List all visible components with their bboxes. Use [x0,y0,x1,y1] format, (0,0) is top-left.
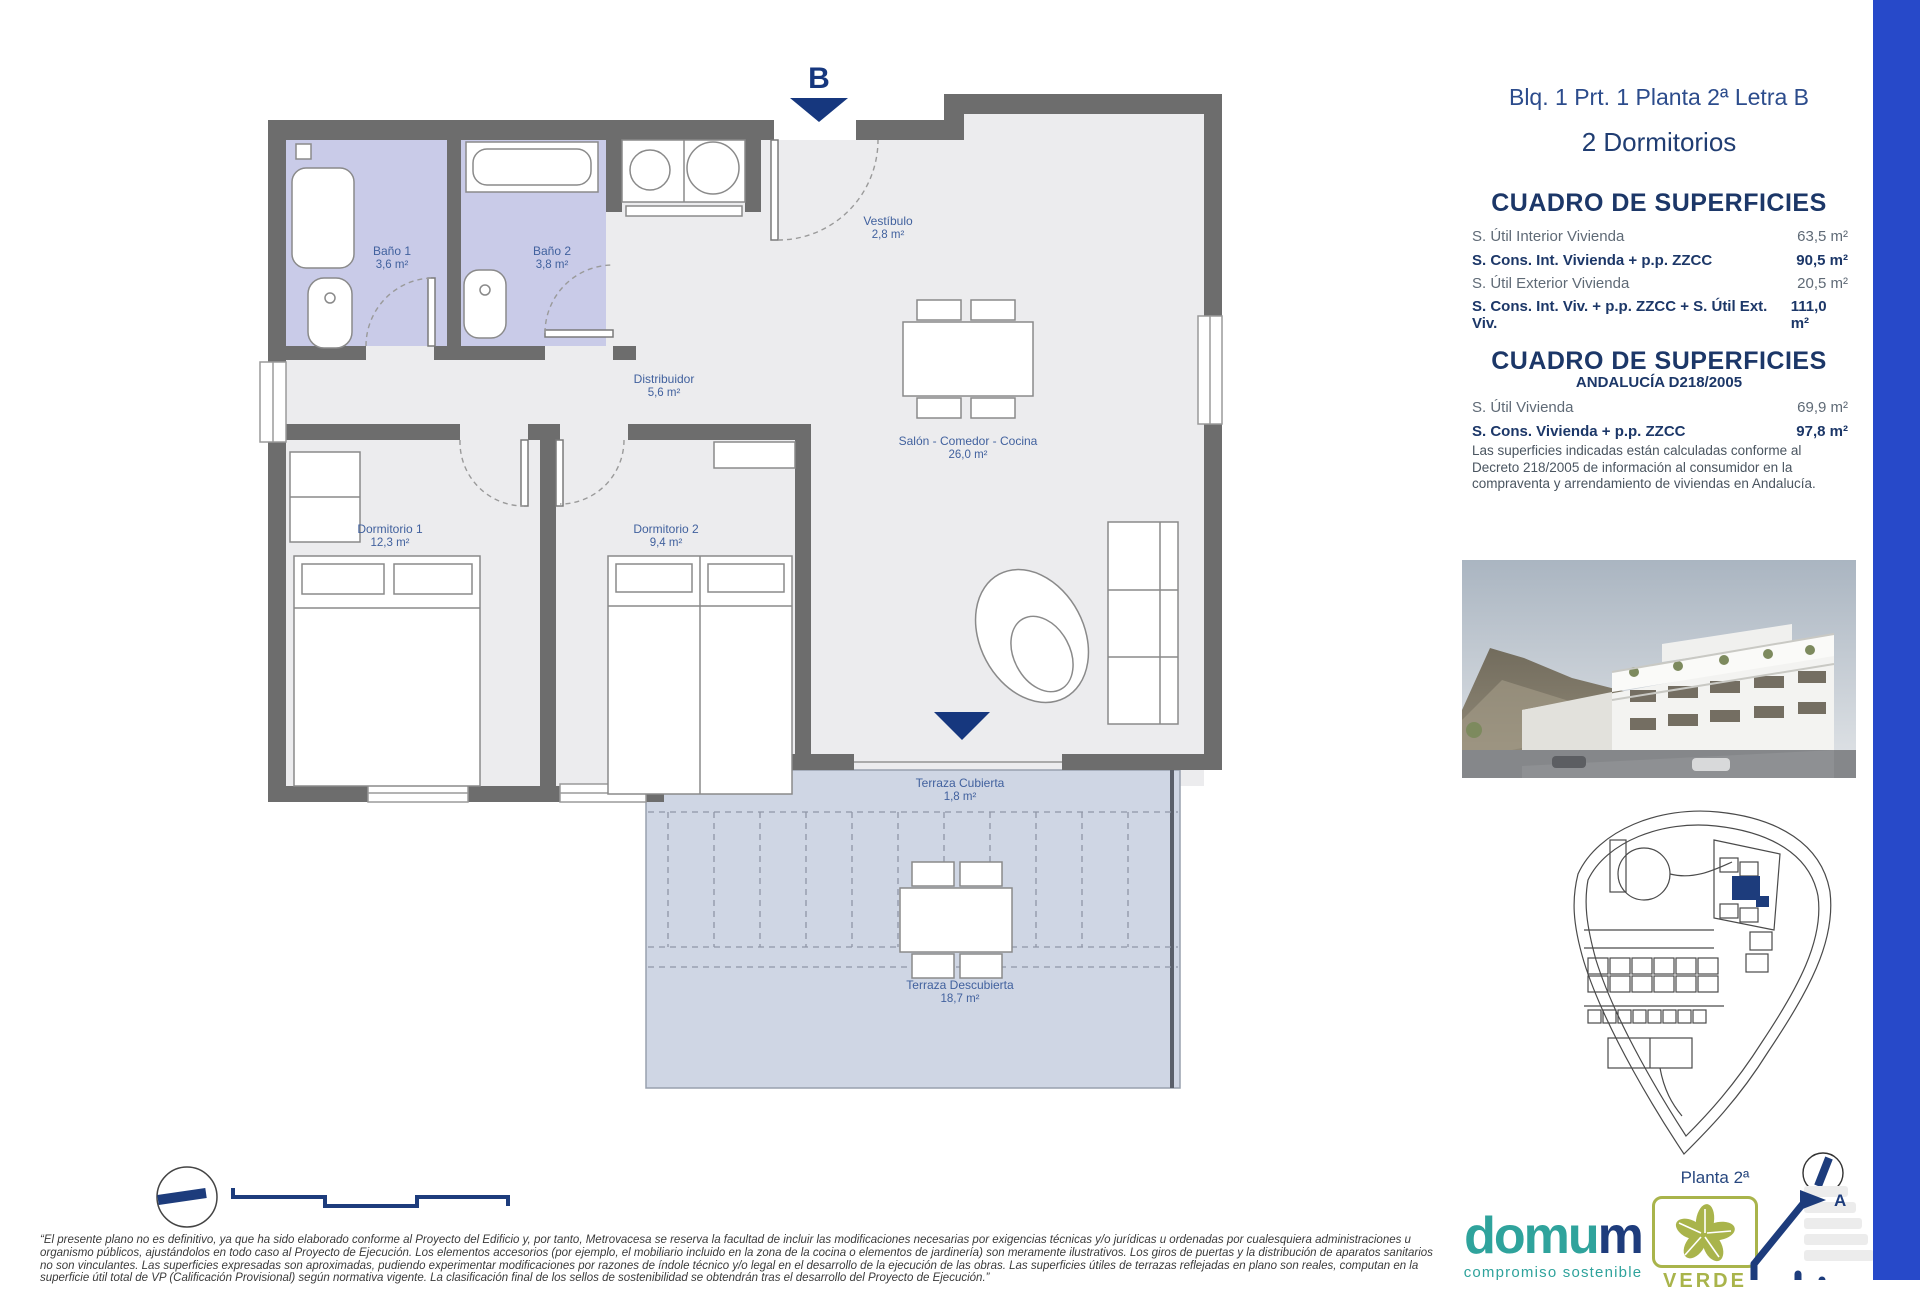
unit-subtitle: 2 Dormitorios [1462,127,1856,158]
bath1-door-leaf [428,278,435,346]
washer-icon [630,150,670,190]
legal-disclaimer: “El presente plano no es definitivo, ya … [40,1234,1440,1285]
floor-plan-sheet: { "page": { "accent_bar_color": "#2749c9… [0,0,1920,1280]
room-label-bano2: Baño 2 3,8 m² [533,244,571,272]
accent-bar [1873,0,1920,1280]
entrance-door-leaf [771,140,778,240]
sink-icon [687,142,739,194]
washbasin-icon [464,270,506,338]
unit-title: Blq. 1 Prt. 1 Planta 2ª Letra B [1462,84,1856,111]
domum-tagline: compromiso sostenible [1458,1264,1648,1281]
room-label-bano1: Baño 1 3,6 m² [373,244,411,272]
compass-icon [157,1167,217,1227]
room-label-dormitorio2: Dormitorio 2 9,4 m² [633,522,698,550]
washbasin-icon [308,278,352,348]
surfaces-note: Las superficies indicadas están calculad… [1472,443,1852,493]
shelf-icon [296,144,311,159]
scale-bar [233,1188,508,1206]
bedroom1-door-leaf [521,440,528,506]
surfaces-table2-heading: CUADRO DE SUPERFICIES [1462,347,1856,376]
room-label-vestibulo: Vestíbulo 2,8 m² [863,214,912,242]
site-plan [1564,800,1860,1162]
closet-icon [714,442,795,468]
table-row: S. Cons. Int. Vivienda + p.p. ZZCC 90,5 … [1472,252,1848,269]
room-label-distribuidor: Distribuidor 5,6 m² [634,372,695,400]
room-label-terraza-descubierta: Terraza Descubierta 18,7 m² [906,978,1013,1006]
energy-rating-icon: A [1742,1182,1887,1280]
table-row: S. Cons. Vivienda + p.p. ZZCC 97,8 m² [1472,423,1848,440]
bedroom2-door-leaf [556,440,563,506]
surfaces-table2-subheading: ANDALUCÍA D218/2005 [1462,374,1856,391]
entrance-arrow-icon [790,98,848,122]
table-row: S. Útil Exterior Vivienda 20,5 m² [1472,275,1848,292]
unit-location-marker [1732,876,1760,900]
domum-logo: domum compromiso sostenible [1458,1210,1648,1281]
room-label-salon: Salón - Comedor - Cocina 26,0 m² [899,434,1038,462]
surfaces-table-heading: CUADRO DE SUPERFICIES [1462,189,1856,218]
room-label-terraza-cubierta: Terraza Cubierta 1,8 m² [916,776,1005,804]
shower-tray-icon [292,168,354,268]
dining-table-icon [903,322,1033,396]
table-row: S. Cons. Int. Viv. + p.p. ZZCC + S. Útil… [1472,298,1848,332]
sofa-icon [1108,522,1178,724]
table-row: S. Útil Interior Vivienda 63,5 m² [1472,228,1848,245]
terrace-table-icon [900,888,1012,952]
room-label-dormitorio1: Dormitorio 1 12,3 m² [357,522,422,550]
bath2-door-leaf [545,330,613,337]
floor-plan-drawing [0,0,1250,1280]
energy-letter: A [1834,1191,1846,1210]
table-row: S. Útil Vivienda 69,9 m² [1472,399,1848,416]
entrance-marker-label: B [808,62,830,96]
building-render-photo [1462,560,1856,778]
